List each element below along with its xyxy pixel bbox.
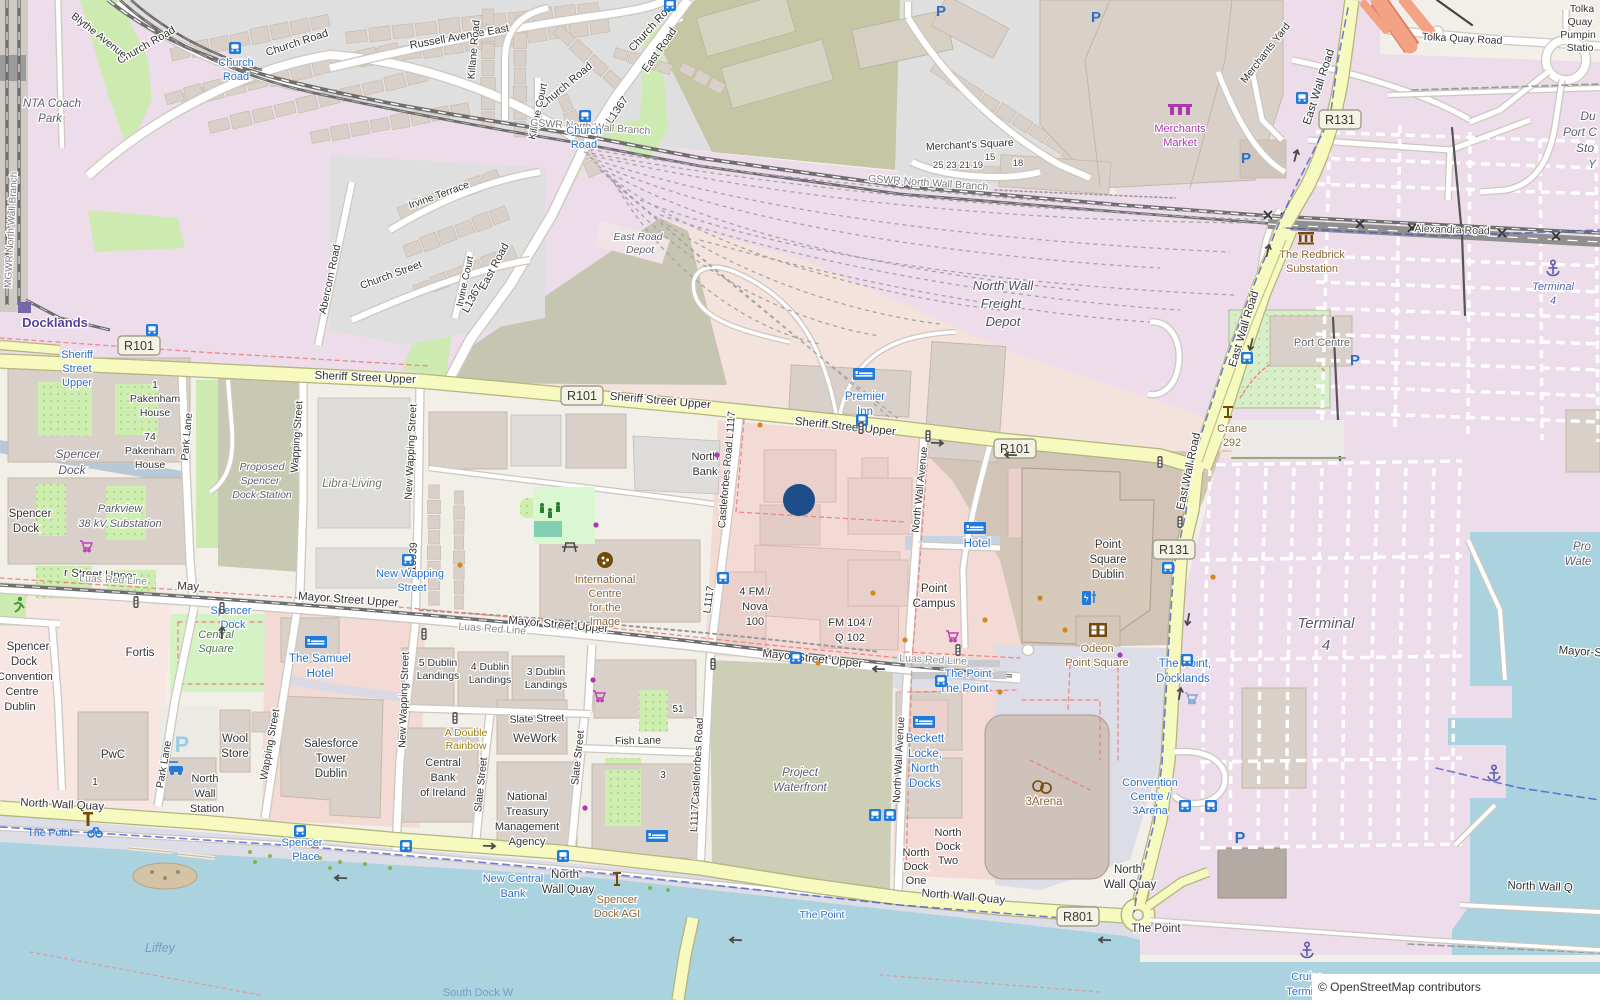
- svg-text:Hotel: Hotel: [307, 668, 334, 680]
- svg-text:One: One: [906, 875, 927, 887]
- svg-text:Docklands: Docklands: [1156, 673, 1210, 685]
- svg-text:Docks: Docks: [909, 778, 941, 790]
- svg-text:P: P: [1241, 150, 1251, 167]
- svg-text:Wall Quay: Wall Quay: [542, 884, 595, 896]
- svg-text:Station: Station: [190, 803, 224, 815]
- svg-text:Centre: Centre: [5, 686, 38, 698]
- svg-text:New Central: New Central: [483, 873, 544, 885]
- svg-text:North: North: [903, 847, 930, 859]
- svg-text:Spencer: Spencer: [56, 447, 102, 461]
- svg-text:Dock: Dock: [11, 656, 37, 668]
- svg-text:The Redbrick: The Redbrick: [1279, 249, 1345, 261]
- svg-text:Docklands: Docklands: [22, 315, 88, 330]
- svg-text:Dock AGI: Dock AGI: [594, 908, 640, 920]
- svg-text:Bank: Bank: [500, 888, 526, 900]
- svg-text:P: P: [936, 3, 946, 20]
- svg-text:3Arena: 3Arena: [1025, 796, 1063, 808]
- svg-text:Fortis: Fortis: [126, 647, 155, 659]
- svg-text:Sto: Sto: [1576, 141, 1594, 155]
- svg-text:Point: Point: [1095, 539, 1122, 551]
- svg-text:New Wapping: New Wapping: [376, 568, 444, 580]
- svg-text:Centre: Centre: [588, 588, 621, 600]
- svg-text:Wate: Wate: [1565, 556, 1592, 568]
- svg-text:R101: R101: [124, 339, 154, 353]
- svg-text:National: National: [507, 791, 547, 803]
- svg-text:North: North: [551, 869, 579, 881]
- svg-text:Dock: Dock: [903, 861, 929, 873]
- svg-text:Terminal: Terminal: [1532, 281, 1574, 293]
- svg-text:Pakenham: Pakenham: [125, 445, 175, 457]
- svg-text:Premier: Premier: [845, 391, 885, 403]
- svg-text:P: P: [1350, 352, 1360, 369]
- svg-text:38 kV Substation: 38 kV Substation: [78, 518, 161, 530]
- svg-text:NTA Coach: NTA Coach: [23, 98, 81, 110]
- svg-text:Convention: Convention: [0, 671, 53, 683]
- svg-text:Locke,: Locke,: [908, 748, 942, 760]
- svg-text:The Point: The Point: [944, 668, 991, 680]
- svg-text:Spencer: Spencer: [597, 894, 638, 906]
- svg-text:Hotel: Hotel: [964, 538, 991, 550]
- svg-text:Rainbow: Rainbow: [446, 740, 487, 752]
- svg-text:Landings: Landings: [417, 670, 460, 682]
- svg-text:1: 1: [152, 379, 158, 391]
- svg-text:Wool: Wool: [222, 733, 248, 745]
- svg-text:A Double: A Double: [445, 727, 488, 739]
- svg-text:Market: Market: [1163, 137, 1197, 149]
- svg-text:Liffey: Liffey: [145, 941, 176, 955]
- svg-text:Store: Store: [221, 748, 249, 760]
- svg-text:Du: Du: [1580, 109, 1596, 123]
- svg-text:Pumpin: Pumpin: [1560, 29, 1596, 41]
- svg-text:Campus: Campus: [913, 598, 956, 610]
- svg-text:East Road: East Road: [613, 231, 663, 243]
- svg-text:R101: R101: [567, 389, 597, 403]
- svg-text:Pakenham: Pakenham: [130, 393, 180, 405]
- svg-text:Dock: Dock: [13, 523, 39, 535]
- svg-text:4 FM /: 4 FM /: [739, 586, 771, 598]
- svg-text:Spencer: Spencer: [7, 641, 50, 653]
- svg-text:Depot: Depot: [626, 244, 655, 256]
- svg-text:Landings: Landings: [469, 674, 512, 686]
- svg-text:Treasury: Treasury: [506, 806, 549, 818]
- svg-text:Wall: Wall: [195, 788, 216, 800]
- svg-text:North Wall: North Wall: [973, 278, 1035, 293]
- svg-text:Spencer: Spencer: [211, 605, 252, 617]
- svg-text:Depot: Depot: [986, 314, 1022, 329]
- svg-text:74: 74: [144, 431, 156, 443]
- svg-text:Salesforce: Salesforce: [304, 738, 358, 750]
- svg-text:25 23 21 19: 25 23 21 19: [933, 160, 983, 171]
- svg-text:House: House: [140, 407, 171, 419]
- svg-text:Bank: Bank: [430, 772, 456, 784]
- svg-text:15: 15: [985, 152, 996, 163]
- svg-text:Point: Point: [921, 583, 948, 595]
- svg-text:PwC: PwC: [101, 749, 125, 761]
- svg-text:Proposed: Proposed: [240, 461, 286, 473]
- svg-text:Upper: Upper: [62, 377, 92, 389]
- svg-text:The Samuel: The Samuel: [289, 653, 351, 665]
- svg-text:3 Dublin: 3 Dublin: [527, 666, 566, 678]
- svg-text:Spencer: Spencer: [240, 475, 280, 487]
- svg-text:Park: Park: [38, 113, 63, 125]
- svg-text:Statio: Statio: [1567, 42, 1594, 54]
- svg-text:P: P: [1091, 9, 1101, 26]
- svg-text:FM 104 /: FM 104 /: [828, 617, 872, 629]
- svg-text:Central: Central: [425, 757, 460, 769]
- svg-text:Port C: Port C: [1563, 125, 1597, 139]
- svg-text:Tolka: Tolka: [1570, 3, 1595, 15]
- svg-text:4: 4: [1322, 637, 1330, 654]
- svg-text:Parkview: Parkview: [98, 503, 144, 515]
- svg-text:4 Dublin: 4 Dublin: [471, 661, 510, 673]
- svg-text:Dublin: Dublin: [315, 768, 348, 780]
- svg-text:Q 102: Q 102: [835, 632, 865, 644]
- svg-text:The Point: The Point: [1131, 923, 1181, 935]
- svg-text:5 Dublin: 5 Dublin: [419, 657, 458, 669]
- svg-text:Wall Quay: Wall Quay: [1104, 879, 1157, 891]
- svg-text:The Point: The Point: [800, 909, 845, 921]
- svg-text:Dublin: Dublin: [1092, 569, 1125, 581]
- svg-text:May: May: [177, 580, 200, 593]
- svg-text:North: North: [935, 827, 962, 839]
- svg-text:4: 4: [1550, 295, 1556, 307]
- svg-text:House: House: [135, 459, 166, 471]
- svg-text:Fish Lane: Fish Lane: [615, 735, 661, 748]
- svg-text:Street: Street: [62, 363, 91, 375]
- svg-text:Agency: Agency: [509, 836, 546, 848]
- svg-text:Substation: Substation: [1286, 263, 1338, 275]
- svg-text:Management: Management: [495, 821, 559, 833]
- svg-text:100: 100: [746, 616, 764, 628]
- svg-text:Square: Square: [198, 643, 233, 655]
- svg-text:Waterfront: Waterfront: [773, 782, 827, 794]
- svg-text:of Ireland: of Ireland: [420, 787, 466, 799]
- svg-text:Dock: Dock: [935, 841, 961, 853]
- svg-text:International: International: [575, 574, 636, 586]
- svg-text:Crane: Crane: [1217, 423, 1247, 435]
- svg-text:Church: Church: [566, 125, 601, 137]
- svg-text:South Dock W: South Dock W: [443, 987, 514, 999]
- svg-text:P: P: [1235, 830, 1246, 847]
- svg-text:Dock Station: Dock Station: [232, 489, 292, 501]
- svg-text:Port Centre: Port Centre: [1294, 337, 1350, 349]
- svg-text:Street: Street: [397, 582, 426, 594]
- svg-text:Road: Road: [223, 71, 249, 83]
- svg-text:Merchants: Merchants: [1154, 123, 1206, 135]
- svg-text:Terminal: Terminal: [1298, 615, 1356, 632]
- svg-text:North: North: [1114, 864, 1142, 876]
- svg-text:P: P: [175, 732, 190, 757]
- svg-text:3: 3: [660, 770, 666, 781]
- svg-text:Place: Place: [292, 851, 320, 863]
- svg-text:Bank: Bank: [692, 466, 718, 478]
- svg-text:Square: Square: [1089, 554, 1126, 566]
- svg-text:North: North: [911, 763, 939, 775]
- svg-text:Image: Image: [590, 616, 621, 628]
- svg-text:Road: Road: [571, 139, 597, 151]
- svg-text:Convention: Convention: [1122, 777, 1178, 789]
- svg-text:The Point: The Point: [28, 827, 73, 839]
- svg-text:Centre /: Centre /: [1130, 791, 1170, 803]
- svg-text:R131: R131: [1325, 113, 1355, 127]
- svg-text:18: 18: [1013, 158, 1024, 169]
- svg-text:Freight: Freight: [981, 296, 1023, 311]
- svg-text:Tower: Tower: [316, 753, 347, 765]
- svg-text:Spencer: Spencer: [9, 508, 52, 520]
- svg-text:Libra-Living: Libra-Living: [322, 478, 382, 490]
- svg-text:Sheriff: Sheriff: [61, 349, 94, 361]
- svg-text:3Arena: 3Arena: [1132, 805, 1168, 817]
- svg-text:Dublin: Dublin: [4, 701, 35, 713]
- svg-text:R131: R131: [1159, 543, 1189, 557]
- svg-text:North Wall Q: North Wall Q: [1507, 880, 1573, 894]
- svg-text:Pro: Pro: [1573, 541, 1592, 553]
- svg-text:WeWork: WeWork: [513, 733, 557, 745]
- svg-text:North: North: [192, 773, 219, 785]
- svg-text:Project: Project: [782, 767, 819, 779]
- svg-text:292: 292: [1223, 437, 1241, 449]
- svg-text:for the: for the: [589, 602, 620, 614]
- svg-text:© OpenStreetMap contributors: © OpenStreetMap contributors: [1318, 980, 1481, 994]
- svg-text:Slate Street: Slate Street: [509, 712, 564, 726]
- svg-text:Point Square: Point Square: [1065, 657, 1129, 669]
- svg-text:Landings: Landings: [525, 679, 568, 691]
- svg-text:North: North: [692, 451, 719, 463]
- svg-text:Two: Two: [938, 855, 958, 867]
- svg-text:Dock: Dock: [58, 463, 86, 477]
- svg-text:Nova: Nova: [742, 601, 769, 613]
- svg-text:1: 1: [92, 777, 98, 788]
- svg-text:R801: R801: [1063, 910, 1093, 924]
- svg-text:Church: Church: [218, 57, 253, 69]
- svg-text:51: 51: [672, 704, 684, 715]
- svg-text:Quay: Quay: [1567, 16, 1593, 28]
- svg-text:Odeon: Odeon: [1080, 643, 1113, 655]
- svg-text:Y: Y: [1588, 157, 1597, 171]
- svg-text:R101: R101: [1000, 442, 1030, 456]
- svg-text:Beckett: Beckett: [906, 733, 945, 745]
- svg-text:Spencer: Spencer: [282, 837, 323, 849]
